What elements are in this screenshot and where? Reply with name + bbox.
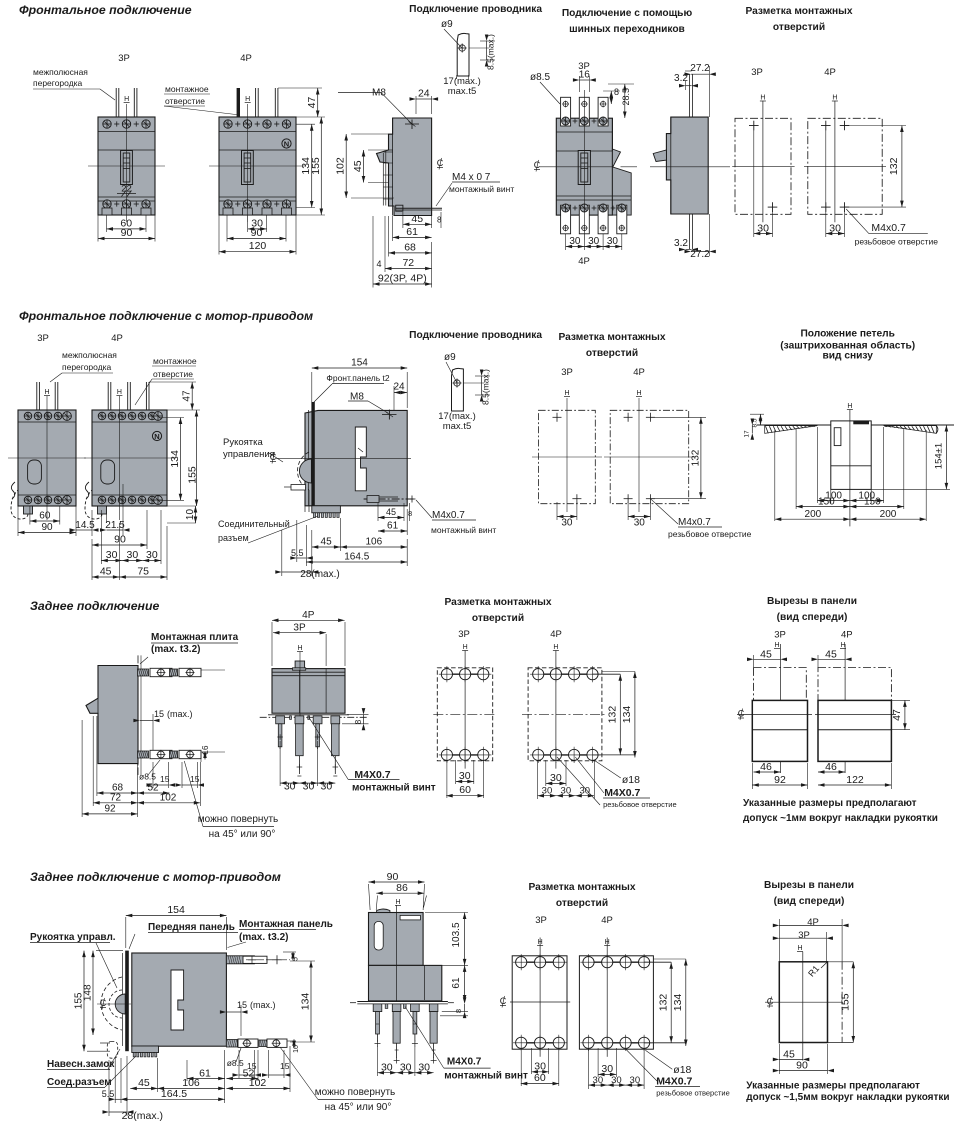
svg-text:134: 134 — [672, 994, 684, 1012]
svg-text:H: H — [538, 939, 543, 946]
svg-text:можно повернуть: можно повернуть — [315, 1087, 396, 1098]
svg-text:155: 155 — [187, 466, 199, 484]
svg-text:45: 45 — [411, 213, 423, 225]
svg-text:3P: 3P — [293, 622, 306, 633]
svg-text:M4x0.7: M4x0.7 — [678, 517, 711, 528]
svg-text:Соединительный: Соединительный — [218, 519, 290, 529]
svg-text:4P: 4P — [633, 367, 645, 378]
svg-text:30: 30 — [561, 518, 573, 529]
svg-text:монтажное: монтажное — [165, 84, 209, 94]
svg-text:Фронт.панель t2: Фронт.панель t2 — [326, 373, 390, 383]
svg-text:Указанные размеры предполагают: Указанные размеры предполагают — [743, 798, 917, 809]
svg-text:H: H — [395, 899, 400, 906]
svg-text:M8: M8 — [372, 88, 386, 99]
svg-text:15: 15 — [247, 1061, 257, 1071]
svg-text:ø8.5: ø8.5 — [227, 1058, 244, 1068]
svg-text:Указанные размеры предполагают: Указанные размеры предполагают — [746, 1081, 920, 1092]
svg-text:на 45° или 90°: на 45° или 90° — [325, 1102, 392, 1113]
svg-text:15: 15 — [280, 1061, 290, 1071]
svg-text:4P: 4P — [240, 53, 252, 64]
svg-text:61: 61 — [387, 521, 399, 532]
svg-text:Рукоятка управл.: Рукоятка управл. — [30, 932, 116, 943]
svg-text:30: 30 — [569, 236, 581, 247]
svg-text:M4x0.7: M4x0.7 — [432, 510, 465, 521]
svg-text:4P: 4P — [824, 67, 836, 78]
svg-text:47: 47 — [891, 709, 903, 721]
svg-text:резьбовое отверстие: резьбовое отверстие — [855, 237, 939, 247]
svg-text:Подключение с помощью: Подключение с помощью — [562, 8, 693, 19]
svg-text:Соед.разъем: Соед.разъем — [47, 1077, 112, 1088]
svg-text:45: 45 — [321, 537, 333, 548]
svg-text:30: 30 — [634, 518, 646, 529]
svg-text:30: 30 — [381, 1061, 393, 1073]
svg-text:30: 30 — [550, 772, 562, 784]
svg-text:90: 90 — [251, 227, 263, 239]
svg-text:H: H — [124, 96, 129, 103]
svg-text:Положение петель: Положение петель — [800, 329, 894, 340]
svg-text:8: 8 — [614, 87, 619, 97]
svg-text:Рукоятка: Рукоятка — [223, 437, 263, 448]
svg-text:72: 72 — [402, 257, 414, 269]
svg-text:перегородка: перегородка — [33, 78, 83, 88]
svg-text:Разметка монтажных: Разметка монтажных — [745, 6, 852, 17]
svg-text:отверстий: отверстий — [773, 22, 825, 33]
svg-text:ø9: ø9 — [441, 19, 453, 30]
svg-text:154±1: 154±1 — [934, 443, 945, 469]
svg-text:45: 45 — [760, 649, 772, 661]
svg-text:H: H — [297, 645, 302, 652]
svg-text:управления: управления — [223, 449, 275, 460]
svg-text:H: H — [553, 644, 558, 651]
svg-text:3.2: 3.2 — [674, 73, 688, 84]
svg-text:max.t5: max.t5 — [443, 421, 472, 432]
svg-text:M4 x 0 7: M4 x 0 7 — [452, 172, 491, 183]
svg-text:монтажный винт: монтажный винт — [352, 783, 436, 794]
svg-text:ø9: ø9 — [444, 352, 456, 363]
svg-text:5.5: 5.5 — [291, 548, 304, 558]
svg-text:155: 155 — [310, 157, 322, 175]
svg-text:46: 46 — [760, 761, 772, 773]
svg-text:155: 155 — [74, 992, 85, 1009]
svg-text:155: 155 — [840, 993, 852, 1011]
svg-text:134: 134 — [300, 993, 312, 1011]
svg-text:92: 92 — [774, 774, 786, 786]
svg-text:ø8.5: ø8.5 — [139, 772, 156, 782]
svg-text:Подключение проводника: Подключение проводника — [409, 4, 542, 15]
svg-text:30: 30 — [580, 786, 591, 797]
svg-text:H: H — [44, 389, 49, 396]
svg-text:10: 10 — [185, 509, 196, 521]
svg-text:164.5: 164.5 — [161, 1088, 187, 1100]
svg-text:резьбовое отверстие: резьбовое отверстие — [603, 800, 677, 809]
svg-text:4P: 4P — [550, 629, 562, 640]
svg-text:3P: 3P — [774, 630, 786, 641]
svg-text:132: 132 — [690, 449, 701, 466]
svg-text:монтажный винт: монтажный винт — [444, 1071, 528, 1082]
svg-text:Заднее подключение: Заднее подключение — [30, 599, 159, 613]
svg-text:16: 16 — [579, 70, 591, 81]
svg-text:M4X0.7: M4X0.7 — [656, 1076, 692, 1088]
svg-text:45: 45 — [100, 566, 112, 578]
svg-text:H: H — [564, 390, 569, 397]
svg-text:72: 72 — [110, 792, 122, 803]
svg-text:max.t5: max.t5 — [448, 86, 477, 97]
svg-text:134: 134 — [621, 706, 633, 724]
svg-text:30: 30 — [588, 236, 600, 247]
svg-text:N: N — [154, 432, 159, 441]
svg-text:30: 30 — [418, 1061, 430, 1073]
svg-text:30: 30 — [630, 1075, 641, 1086]
svg-text:30: 30 — [607, 236, 619, 247]
svg-text:61: 61 — [199, 1068, 211, 1080]
svg-text:3P: 3P — [798, 930, 810, 941]
svg-text:шинных переходников: шинных переходников — [569, 24, 685, 35]
svg-text:H: H — [760, 95, 765, 102]
svg-text:M4X0.7: M4X0.7 — [447, 1057, 482, 1068]
svg-text:30: 30 — [561, 786, 572, 797]
svg-text:60: 60 — [459, 784, 471, 796]
svg-text:46: 46 — [825, 761, 837, 773]
svg-text:H: H — [117, 389, 122, 396]
svg-text:Монтажная панель: Монтажная панель — [239, 919, 333, 930]
svg-text:75: 75 — [137, 566, 149, 578]
svg-text:3.2: 3.2 — [674, 238, 688, 249]
svg-text:122: 122 — [846, 774, 864, 786]
svg-text:отверстие: отверстие — [153, 369, 193, 379]
svg-text:Монтажная плита: Монтажная плита — [151, 632, 239, 643]
svg-text:30: 30 — [459, 770, 471, 782]
svg-text:Разметка монтажных: Разметка монтажных — [444, 597, 551, 608]
svg-text:52: 52 — [147, 783, 159, 794]
svg-text:15: 15 — [190, 774, 200, 784]
svg-text:30: 30 — [542, 786, 553, 797]
svg-text:Фронтальное подключение: Фронтальное подключение — [19, 3, 192, 17]
svg-text:ø18: ø18 — [673, 1064, 691, 1076]
svg-text:150: 150 — [864, 496, 881, 507]
svg-text:17: 17 — [744, 430, 751, 438]
svg-text:вид снизу: вид снизу — [823, 351, 874, 362]
svg-text:30: 30 — [303, 781, 315, 793]
svg-text:132: 132 — [657, 994, 669, 1012]
svg-text:90: 90 — [114, 534, 126, 546]
svg-text:(вид спереди): (вид спереди) — [777, 612, 848, 623]
svg-text:30: 30 — [534, 1060, 546, 1072]
svg-text:200: 200 — [880, 509, 897, 520]
svg-text:разъем: разъем — [218, 533, 249, 543]
svg-text:47: 47 — [306, 97, 318, 109]
svg-text:резьбовое отверстие: резьбовое отверстие — [656, 1089, 730, 1098]
svg-text:200: 200 — [805, 509, 822, 520]
svg-text:106: 106 — [365, 537, 382, 548]
svg-text:21.5: 21.5 — [105, 520, 125, 531]
svg-text:5.5: 5.5 — [102, 1089, 115, 1099]
svg-text:монтажный винт: монтажный винт — [449, 184, 514, 194]
svg-text:3P: 3P — [751, 67, 763, 78]
svg-text:монтажное: монтажное — [153, 356, 197, 366]
svg-text:3P: 3P — [37, 333, 49, 344]
svg-text:28.5: 28.5 — [621, 88, 631, 106]
svg-text:4P: 4P — [841, 630, 853, 641]
svg-text:102: 102 — [335, 157, 347, 175]
svg-text:перегородка: перегородка — [62, 362, 112, 372]
svg-text:90: 90 — [41, 522, 53, 533]
svg-text:Заднее подключение с мотор-при: Заднее подключение с мотор-приводом — [30, 870, 281, 884]
svg-text:4P: 4P — [578, 256, 590, 267]
svg-text:допуск ~1,5мм вокруг накладки: допуск ~1,5мм вокруг накладки рукоятки — [746, 1092, 949, 1103]
svg-text:Разметка монтажных: Разметка монтажных — [558, 332, 665, 343]
svg-text:H: H — [245, 96, 250, 103]
svg-text:90: 90 — [121, 227, 133, 239]
svg-text:H: H — [774, 642, 779, 649]
svg-text:(max. t3.2): (max. t3.2) — [151, 644, 200, 655]
svg-text:4P: 4P — [601, 915, 613, 926]
svg-text:28(max.): 28(max.) — [300, 569, 339, 580]
svg-text:4: 4 — [376, 259, 381, 269]
svg-text:24: 24 — [393, 382, 405, 393]
svg-text:27.2: 27.2 — [690, 63, 710, 74]
svg-text:резьбовое отверстие: резьбовое отверстие — [668, 529, 752, 539]
svg-text:90: 90 — [796, 1060, 808, 1072]
svg-text:68: 68 — [404, 241, 416, 253]
svg-text:60: 60 — [534, 1072, 546, 1084]
svg-text:8: 8 — [354, 719, 363, 724]
svg-text:(вид спереди): (вид спереди) — [774, 896, 845, 907]
svg-text:H: H — [847, 403, 852, 410]
svg-text:4P: 4P — [807, 917, 819, 928]
svg-text:45: 45 — [386, 507, 396, 517]
svg-text:102: 102 — [249, 1077, 267, 1089]
svg-text:30: 30 — [829, 222, 841, 234]
svg-text:отверстий: отверстий — [556, 898, 608, 909]
svg-text:(max.): (max.) — [250, 1000, 276, 1010]
svg-text:15: 15 — [237, 1000, 247, 1010]
svg-text:межполюсная: межполюсная — [62, 350, 117, 360]
svg-text:24: 24 — [418, 88, 430, 100]
svg-text:4P: 4P — [302, 610, 315, 621]
svg-text:M4X0.7: M4X0.7 — [604, 787, 640, 799]
svg-text:H: H — [463, 644, 468, 651]
svg-text:103.5: 103.5 — [451, 922, 462, 947]
svg-text:134: 134 — [169, 450, 181, 468]
svg-text:154: 154 — [167, 904, 185, 916]
svg-text:30: 30 — [106, 549, 118, 561]
svg-text:Вырезы в панели: Вырезы в панели — [764, 880, 854, 891]
svg-text:30: 30 — [400, 1061, 412, 1073]
svg-text:102: 102 — [160, 792, 177, 803]
svg-text:H: H — [832, 95, 837, 102]
svg-text:61: 61 — [451, 977, 462, 989]
svg-text:120: 120 — [249, 240, 267, 252]
svg-text:(max. t3.2): (max. t3.2) — [239, 932, 288, 943]
svg-text:47: 47 — [182, 390, 193, 402]
svg-text:45: 45 — [138, 1077, 150, 1089]
svg-text:30: 30 — [127, 549, 139, 561]
svg-text:150: 150 — [818, 496, 835, 507]
svg-text:45: 45 — [783, 1048, 795, 1060]
svg-text:Навесн.замок: Навесн.замок — [47, 1059, 115, 1070]
svg-text:60: 60 — [39, 511, 51, 522]
svg-text:отверстие: отверстие — [165, 96, 205, 106]
svg-text:164.5: 164.5 — [344, 552, 369, 563]
svg-text:15: 15 — [154, 709, 164, 719]
svg-text:3P: 3P — [535, 915, 547, 926]
svg-text:M4x0.7: M4x0.7 — [871, 222, 906, 234]
svg-text:3P: 3P — [458, 629, 470, 640]
svg-text:ø8.5: ø8.5 — [530, 72, 550, 83]
svg-text:8: 8 — [437, 216, 442, 225]
svg-text:N: N — [284, 140, 289, 149]
svg-text:H: H — [797, 945, 802, 952]
svg-text:Вырезы в панели: Вырезы в панели — [767, 596, 857, 607]
svg-text:отверстий: отверстий — [586, 348, 638, 359]
svg-text:61: 61 — [406, 226, 418, 238]
svg-text:45: 45 — [825, 649, 837, 661]
svg-text:3P: 3P — [561, 367, 573, 378]
svg-text:3P: 3P — [118, 53, 130, 64]
svg-text:4P: 4P — [111, 333, 123, 344]
svg-text:8: 8 — [454, 1009, 463, 1013]
svg-text:H: H — [636, 390, 641, 397]
svg-text:на 45° или 90°: на 45° или 90° — [209, 829, 276, 840]
svg-text:Подключение проводника: Подключение проводника — [409, 330, 542, 341]
svg-text:Фронтальное подключение с мото: Фронтальное подключение с мотор-приводом — [19, 309, 313, 323]
svg-text:30: 30 — [757, 222, 769, 234]
svg-text:(max.): (max.) — [167, 709, 193, 719]
svg-text:30: 30 — [593, 1075, 604, 1086]
svg-text:27.2: 27.2 — [690, 249, 710, 260]
svg-text:45: 45 — [352, 160, 364, 172]
svg-text:92(3P, 4P): 92(3P, 4P) — [378, 273, 427, 285]
svg-text:132: 132 — [888, 157, 900, 175]
svg-text:28(max.): 28(max.) — [122, 1110, 163, 1122]
svg-text:154: 154 — [351, 358, 368, 369]
svg-text:30: 30 — [321, 781, 333, 793]
svg-text:H: H — [605, 939, 610, 946]
svg-text:30: 30 — [284, 781, 296, 793]
svg-text:132: 132 — [607, 706, 619, 724]
svg-text:30: 30 — [146, 549, 158, 561]
svg-text:86: 86 — [396, 882, 408, 894]
svg-text:30: 30 — [611, 1075, 622, 1086]
svg-text:монтажный винт: монтажный винт — [431, 525, 496, 535]
svg-text:8: 8 — [408, 509, 412, 518]
svg-text:5: 5 — [293, 957, 300, 961]
svg-text:межполюсная: межполюсная — [33, 67, 88, 77]
svg-text:Передняя панель: Передняя панель — [148, 922, 235, 933]
svg-text:можно повернуть: можно повернуть — [198, 814, 279, 825]
svg-text:30: 30 — [601, 1063, 613, 1075]
svg-text:92: 92 — [104, 803, 116, 814]
svg-text:отверстий: отверстий — [472, 613, 524, 624]
svg-text:Разметка монтажных: Разметка монтажных — [528, 882, 635, 893]
svg-text:допуск ~1мм вокруг накладки ру: допуск ~1мм вокруг накладки рукоятки — [743, 813, 938, 824]
svg-text:ø18: ø18 — [622, 774, 640, 786]
